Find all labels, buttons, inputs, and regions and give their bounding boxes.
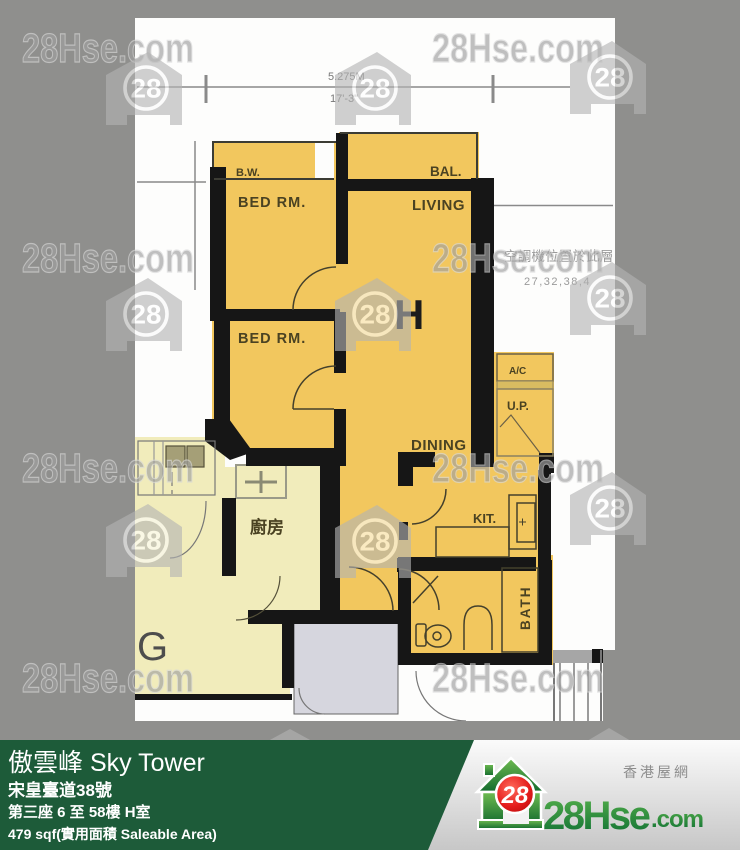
svg-text:28: 28: [501, 782, 529, 809]
svg-text:28Hse: 28Hse: [543, 794, 650, 838]
svg-text:.com: .com: [651, 806, 703, 833]
svg-text:香港屋網: 香港屋網: [623, 764, 691, 780]
